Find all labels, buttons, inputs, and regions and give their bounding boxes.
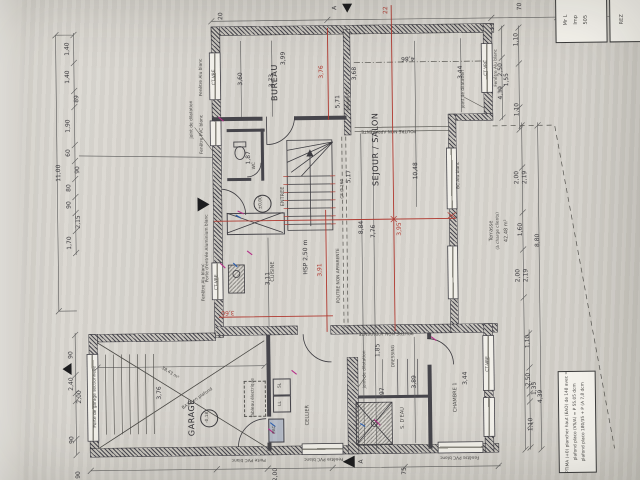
porte-pvc-label: Porte PVC blanc [232,457,266,462]
dim-leftlow-3: 90 [69,436,75,444]
dim-top-0: 20 [218,12,224,20]
bc-alu-label: BC Alu blanc [457,162,462,189]
dim-sejour-2: 10,48 [413,162,419,179]
dim-garage-0: 3,76 [157,386,163,399]
room-label-dressing: DRESSING [392,345,397,367]
title-block-sheet-cell: REZ [609,0,640,42]
dim-rightup-1: 1,10 [513,33,519,46]
red-dim-sejour: 3,95 [397,222,403,235]
dim-sdeau-1: 97 [380,387,386,395]
joint-dilatation-3: joint de dilatation [363,351,368,389]
dim-rightup-4: 4,39 [498,86,504,99]
dim-terr-4: 2,19 [523,269,529,282]
note-line-3: plafond placo 180/35 + P (A 7,8 dcm [582,382,587,461]
dim-left-2: 89 [74,95,80,103]
level-entree: ±0,00 [259,196,263,209]
room-label-terrasse: Terrasse [489,221,494,242]
dimension-lines [52,13,640,474]
dim-leftlow-1: 2,40 [69,377,75,390]
dim-leftlow-0: 90 [68,351,74,359]
dim-bot-2: 75 [402,467,408,475]
dim-left-7: 90 [67,201,73,209]
dim-bot-0: 90 [76,471,82,479]
red-dim-cuisine: 3,60 [221,309,234,315]
red-annotations [211,4,457,333]
room-label-chambre: CHAMBRE 1 [453,382,458,412]
title-line-1: Mr L [564,15,569,26]
sl-label: SL [279,383,283,388]
room-label-cuisine: CUISINE [271,261,276,281]
dim-rightup-0: 70 [517,3,523,11]
title-line-3: 505 [584,15,589,25]
dim-chambre-0: 3,89 [412,375,418,388]
fenetre-pvc-2: Fenêtre PVC blanc [304,456,343,461]
sheet-name: REZ [620,14,625,24]
fenetre-alu-3: Fenêtre Alu blanc [202,264,207,302]
room-label-sejour: SEJOUR / SALON [371,112,380,186]
dim-rightup-3: 1,55 [504,73,510,86]
hsp-label: HSP 2,50 m [303,240,309,275]
red-dim-top: 22 [383,6,389,14]
poutre-label-h1: POUTRE NON APPARENTE [361,128,416,133]
room-label-wc: WC [253,162,257,169]
ct-vre-4: CT VRE [486,356,490,372]
dim-left-0: 1,40 [65,42,71,55]
note-line-2: plafond placo (VS/A) = P 55.05 dcm [574,383,579,460]
fenetre-pvc-3: Fenêtre PVC blanc [440,454,479,459]
dim-chambre-1: 3,44 [463,372,469,385]
cloison-cf-label: cloison CF [347,89,352,111]
room-label-cellier: CELLIER [306,405,311,425]
dim-terr-1: 2,19 [522,171,528,184]
title-line-2: Imp [574,15,579,25]
dim-bot-1: 2,00 [273,468,279,480]
dim-rightlow-4: 1,10 [528,418,534,431]
dim-bureau-2: 3,99 [281,52,287,65]
room-label-terrasse-area: 42,48 m² [504,219,509,242]
dim-bureau-1: 3,73 [269,74,275,87]
staircase [287,140,334,231]
dim-terr-3: 2,00 [515,269,521,282]
poutre-label-h2: POUTRE NON APPARENTE [359,330,414,335]
joint-dilatation-1: joint de dilatation [190,101,195,139]
dim-terr-total: 8,80 [535,234,541,247]
dim-rightlow-3: 4,39 [538,390,544,403]
dim-sejour-7: 3,44 [458,66,464,79]
dim-sejour-4: 8,84 [359,221,365,234]
fenetre-pvc-1: Fenêtre PVC blanc [200,115,205,154]
dim-sejour-1: 3,68 [352,67,358,80]
floorplan-drawing: BUREAU SEJOUR / SALON ENTREE WC CUISINE … [0,0,640,480]
dim-sejour-3: 5,17 [346,170,352,183]
dim-left-1: 1,40 [65,70,71,83]
dim-left-4: 60 [66,149,72,157]
room-label-terrasse-sub: (à charge clients) [497,212,502,250]
room-label-entree: ENTREE [281,187,286,207]
dim-rightlow-0: 1,10 [525,335,531,348]
red-dim-hall: 3,91 [317,263,323,276]
dim-left-8: 2,15 [76,215,82,228]
floorplan-photo: BUREAU SEJOUR / SALON ENTREE WC CUISINE … [0,0,640,480]
dim-left-total: 11,00 [56,165,62,182]
dim-left-6: 80 [66,184,72,192]
red-dim-bureau: 3,76 [319,65,325,78]
dim-terr-2: 1,60 [518,223,524,236]
note-box: Rdc OPTIMA (+0) plancher haut (EAO) de 1… [558,371,597,473]
room-label-sdeau: S. D'EAU [401,407,406,429]
dim-sejour-0: 5,71 [335,95,341,108]
dim-left-9: 1,70 [67,236,73,249]
dim-sejour-5: 7,76 [371,225,377,238]
porte-garage-label: Porte de garage sectionnelle [93,366,98,428]
garage-markings [97,341,265,449]
fenetre-alu-1: Fenêtre Alu blanc [200,59,205,97]
ct-vre-2: CT VRE [485,60,489,76]
level-garage: -0,18 [206,412,210,423]
poutre-label-v: POUTRE NON APPARENTE [337,248,342,303]
ct-vre-1: CT VRE [213,69,217,85]
ct-vre-3: CT VRE [215,274,219,290]
section-mark-bottom: A [359,459,365,463]
dim-leftlow-2: 2,00 [77,390,83,403]
section-mark-top: A [332,6,338,10]
dim-terr-0: 2,00 [514,171,520,184]
title-block: Mr L Imp 505 [555,0,608,43]
dim-cuisine-0: 3,11 [265,272,271,285]
dim-rightup-5: 1,10 [514,103,520,116]
tableau-label: Tableau électrique [252,378,257,417]
dim-bureau-0: 3,60 [238,72,244,85]
note-line-1: Rdc OPTIMA (+0) plancher haut (EAO) de 1… [565,371,571,473]
ll-label: LL [279,401,283,406]
dim-sdeau-0: 1,85 [375,344,381,357]
dim-left-3: 1,90 [66,119,72,132]
pac-label: PAC [273,425,277,433]
dim-cuisine-1: 1,87 [246,151,252,164]
dim-sejour-6: 4,86 [401,55,414,61]
dim-left-5: 90 [75,166,81,174]
